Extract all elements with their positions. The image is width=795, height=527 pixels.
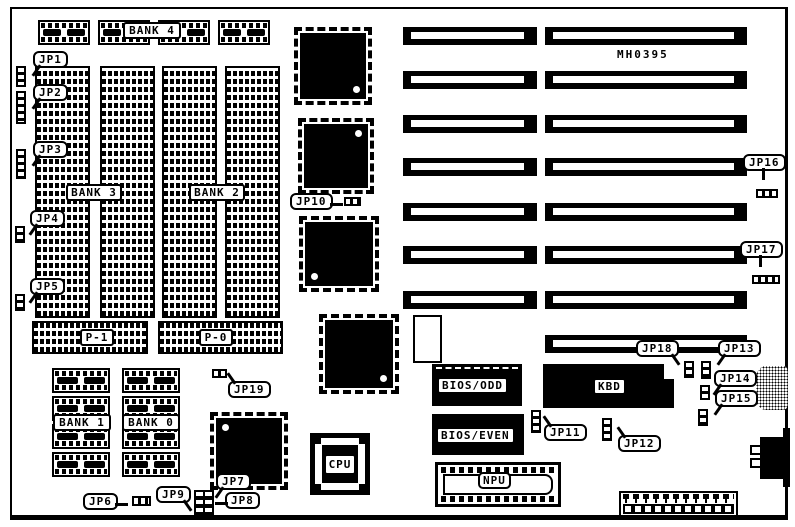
jumper-label-jp4: JP4	[30, 210, 65, 227]
jumper-block-jp11	[531, 410, 541, 433]
motherboard-diagram: BANK 4 BANK 3 BANK 2 P-1 P-0 BANK 1 BANK…	[0, 0, 795, 527]
jumper-label-jp1: JP1	[33, 51, 68, 68]
pin1-dot	[355, 130, 362, 137]
qfp-chip	[305, 222, 373, 286]
jumper-label-jp10: JP10	[290, 193, 333, 210]
cpu-socket: CPU	[310, 433, 370, 495]
isa-slot	[403, 115, 537, 133]
bank4-label: BANK 4	[123, 22, 181, 39]
jumper-block-jp14	[700, 385, 710, 400]
jumper-block-jp18	[684, 361, 694, 378]
isa-slot	[403, 71, 537, 89]
jumper-label-jp19: JP19	[228, 381, 271, 398]
jumper-block-jp4	[15, 226, 25, 243]
jumper-label-jp14: JP14	[714, 370, 757, 387]
jumper-block-jp19	[212, 369, 227, 378]
jumper-label-jp3: JP3	[33, 141, 68, 158]
jumper-block-jp6	[132, 496, 151, 506]
bank3-label: BANK 3	[66, 184, 122, 201]
isa-slot	[545, 246, 747, 264]
isa-slot	[403, 158, 537, 176]
bios-even-label: BIOS/EVEN	[436, 427, 515, 444]
keyboard-controller-chip	[663, 379, 674, 408]
jumper-label-jp11: JP11	[544, 424, 587, 441]
jumper-label-jp17: JP17	[740, 241, 783, 258]
dip-socket	[52, 452, 110, 477]
jumper-label-jp15: JP15	[715, 390, 758, 407]
isa-slot	[403, 27, 537, 45]
connector-tab	[750, 445, 762, 455]
jumper-block-jp1	[16, 66, 26, 87]
connector-tab	[750, 458, 762, 468]
battery-outline	[413, 315, 442, 363]
jumper-block-jp5	[15, 294, 25, 311]
isa-slot	[403, 246, 537, 264]
jumper-block-jp12	[602, 418, 612, 441]
qfp-chip	[325, 320, 393, 388]
qfp-chip	[304, 124, 368, 188]
bios-odd-label: BIOS/ODD	[437, 377, 508, 394]
p1-label: P-1	[80, 329, 114, 346]
jumper-block-jp15	[698, 409, 708, 426]
jumper-label-jp5: JP5	[30, 278, 65, 295]
jumper-label-jp16: JP16	[743, 154, 786, 171]
dip-socket	[218, 20, 270, 45]
jumper-label-jp8: JP8	[225, 492, 260, 509]
jumper-block-jp7-jp8-jp9	[194, 490, 214, 517]
bank2-label: BANK 2	[189, 184, 245, 201]
jumper-label-jp7: JP7	[216, 473, 251, 490]
pin1-dot	[311, 273, 318, 280]
isa-slot	[403, 291, 537, 309]
isa-slot	[545, 115, 747, 133]
jumper-label-jp2: JP2	[33, 84, 68, 101]
jumper-block-jp16	[756, 189, 778, 198]
jumper-label-jp18: JP18	[636, 340, 679, 357]
isa-slot	[403, 203, 537, 221]
cpu-label: CPU	[324, 454, 357, 475]
keyboard-din-connector	[756, 366, 788, 410]
isa-slot	[545, 158, 747, 176]
isa-slot	[545, 291, 747, 309]
jumper-block-jp3	[16, 149, 26, 179]
pin1-dot	[380, 375, 387, 382]
isa-slot	[545, 203, 747, 221]
jumper-label-jp13: JP13	[718, 340, 761, 357]
jumper-block-jp2	[16, 91, 26, 124]
jumper-label-jp6: JP6	[83, 493, 118, 510]
dip-socket	[52, 368, 110, 393]
isa-slot	[545, 71, 747, 89]
isa-slot	[545, 27, 747, 45]
jumper-block-jp17	[752, 275, 780, 284]
kbd-label: KBD	[593, 378, 626, 395]
p0-label: P-0	[199, 329, 233, 346]
npu-label: NPU	[478, 472, 511, 489]
dip-socket	[38, 20, 90, 45]
dip-socket	[122, 368, 180, 393]
jumper-label-jp12: JP12	[618, 435, 661, 452]
pin1-dot	[222, 424, 229, 431]
bank1-label: BANK 1	[53, 414, 111, 431]
jumper-block-jp10	[344, 197, 361, 206]
dip-socket	[122, 452, 180, 477]
qfp-chip	[300, 33, 366, 99]
jumper-label-jp9: JP9	[156, 486, 191, 503]
bank0-label: BANK 0	[122, 414, 180, 431]
edge-connector-body	[760, 437, 785, 479]
power-connector	[619, 491, 738, 517]
part-number: MH0395	[617, 48, 669, 61]
jumper-block-jp13	[701, 361, 711, 379]
pin1-dot	[353, 86, 360, 93]
